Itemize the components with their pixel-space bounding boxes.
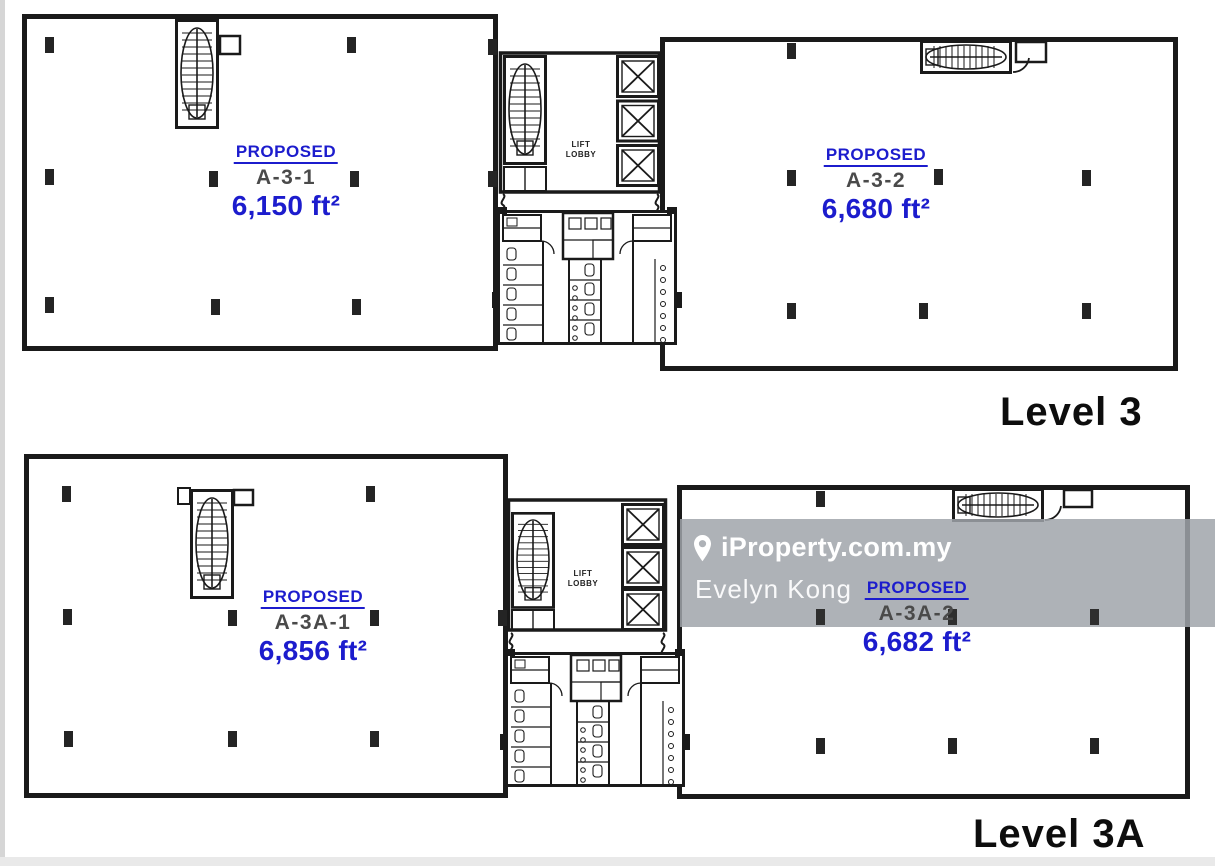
- unit-area: 6,680 ft²: [822, 194, 931, 223]
- unit-name: A-3A-1: [259, 612, 368, 634]
- floor-plan-level-3: LIFTLOBBY: [25, 17, 1176, 369]
- unit-label-a-3a-2: PROPOSED A-3A-2 6,682 ft²: [863, 579, 972, 656]
- unit-area: 6,150 ft²: [232, 191, 341, 220]
- unit-name: A-3-2: [822, 170, 931, 192]
- unit-area: 6,682 ft²: [863, 627, 972, 656]
- toilet-block: [500, 649, 690, 786]
- lift-shaft-icon: [623, 590, 664, 630]
- stair-door-box: [1016, 42, 1046, 62]
- unit-status: PROPOSED: [824, 146, 928, 167]
- level-3-label: Level 3: [1000, 390, 1143, 435]
- unit-area: 6,856 ft²: [259, 636, 368, 665]
- location-pin-icon: [693, 534, 712, 562]
- lift-shaft-icon: [618, 101, 659, 141]
- unit-status: PROPOSED: [261, 588, 365, 609]
- wall-break-mark: [662, 633, 665, 655]
- stair-door-box: [1064, 490, 1092, 507]
- stair-door-box: [234, 490, 253, 505]
- lift-shaft-icon: [623, 548, 664, 588]
- unit-stair-icon: [922, 42, 1011, 73]
- core-level-3a: LIFTLOBBY: [500, 500, 690, 786]
- unit-stair-icon: [954, 490, 1043, 521]
- lift-shaft-icon: [618, 57, 659, 97]
- stair-door-box: [220, 36, 240, 54]
- floor-plan-page: LIFTLOBBY: [0, 0, 1215, 866]
- core-level-3: LIFTLOBBY: [492, 53, 682, 344]
- watermark-brand-text: iProperty.com.my: [721, 532, 952, 563]
- toilet-block: [492, 207, 682, 344]
- core-stair-icon: [513, 513, 554, 607]
- bottom-edge-strip: [0, 857, 1215, 866]
- unit-label-a-3a-1: PROPOSED A-3A-1 6,856 ft²: [259, 588, 368, 665]
- watermark-brand: iProperty.com.my: [680, 519, 1215, 563]
- lift-shaft-icon: [618, 146, 659, 186]
- unit-stair-icon: [192, 491, 233, 598]
- lift-shaft-icon: [623, 505, 664, 545]
- unit-label-a-3-2: PROPOSED A-3-2 6,680 ft²: [822, 146, 931, 223]
- unit-stair-icon: [177, 21, 218, 128]
- unit-name: A-3A-2: [863, 603, 972, 625]
- unit-status: PROPOSED: [234, 143, 338, 164]
- unit-status: PROPOSED: [865, 579, 969, 600]
- unit-name: A-3-1: [232, 167, 341, 189]
- level-3a-label: Level 3A: [973, 812, 1146, 857]
- stair-notch: [178, 488, 190, 504]
- core-stair-icon: [505, 57, 546, 164]
- unit-label-a-3-1: PROPOSED A-3-1 6,150 ft²: [232, 143, 341, 220]
